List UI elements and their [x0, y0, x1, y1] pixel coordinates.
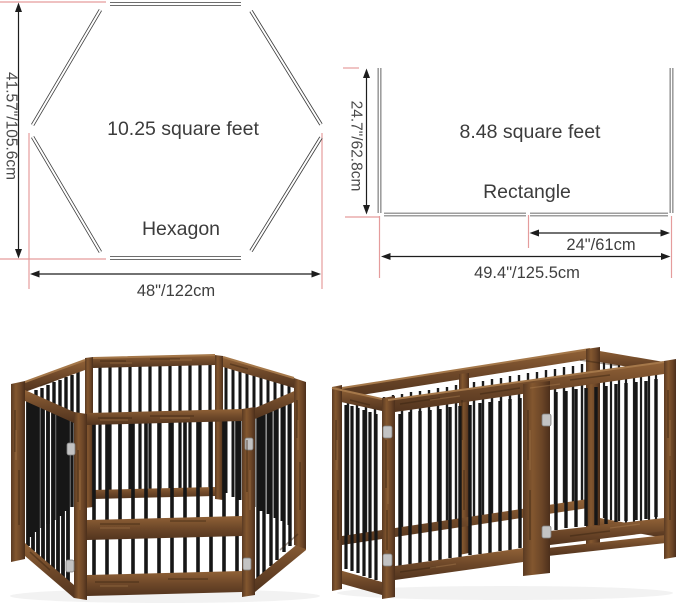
- arrow-left-icon: [530, 230, 540, 237]
- front-left-panel: [11, 381, 74, 598]
- wood-post: [523, 381, 550, 576]
- product-dimension-image: 41.57"/105.6cm 48"/122cm 10.25 square fe…: [0, 0, 679, 606]
- wood-rail: [87, 571, 242, 596]
- wood-post: [215, 355, 223, 500]
- dimension-diagrams: 41.57"/105.6cm 48"/122cm 10.25 square fe…: [0, 0, 679, 310]
- metal-bars: [346, 405, 376, 580]
- rectangle-height-label: 24.7"/62.8cm: [348, 101, 365, 192]
- rectangle-width-label: 49.4"/125.5cm: [474, 264, 580, 282]
- rectangle-shape-label: Rectangle: [483, 181, 571, 203]
- arrow-right-icon: [312, 271, 322, 278]
- hinge-icon: [542, 526, 551, 538]
- hinge-icon: [67, 443, 75, 455]
- arrow-down-icon: [15, 249, 22, 259]
- arrow-up-icon: [15, 3, 22, 13]
- hinge-icon: [542, 414, 551, 426]
- arrow-right-icon: [661, 230, 671, 237]
- rectangle-panel-dimension: 24"/61cm: [530, 230, 671, 255]
- arrow-left-icon: [381, 253, 391, 260]
- rectangle-diagram: 24.7"/62.8cm 24"/61cm 49.4"/125.5cm 8.48…: [343, 68, 672, 282]
- hinge-icon: [383, 554, 392, 566]
- rectangle-width-dimension: 49.4"/125.5cm: [381, 253, 671, 282]
- rectangle-pen-photo: [330, 300, 679, 606]
- arrow-up-icon: [363, 69, 370, 79]
- hinge-icon: [66, 560, 74, 572]
- hinge-icon: [383, 426, 392, 438]
- arrow-down-icon: [363, 205, 370, 215]
- rectangle-panel-label: 24"/61cm: [566, 236, 635, 254]
- hexagon-width-dimension: 48"/122cm: [30, 271, 321, 301]
- metal-bars: [604, 360, 656, 529]
- wood-post: [332, 385, 342, 591]
- hexagon-diagram: 41.57"/105.6cm 48"/122cm 10.25 square fe…: [0, 2, 322, 300]
- arrow-right-icon: [661, 253, 671, 260]
- hexagon-width-label: 48"/122cm: [137, 282, 215, 300]
- left-end-panel: [332, 385, 382, 595]
- front-panels: [332, 359, 676, 599]
- hexagon-shape-label: Hexagon: [142, 218, 220, 240]
- wood-post: [11, 381, 25, 562]
- wood-post: [664, 359, 676, 559]
- hinge-icon: [243, 558, 251, 570]
- arrow-left-icon: [30, 271, 40, 278]
- hexagon-pen-photo: [0, 300, 340, 606]
- rectangle-height-dimension: 24.7"/62.8cm: [348, 69, 371, 215]
- hexagon-area-label: 10.25 square feet: [107, 118, 259, 140]
- rectangle-area-label: 8.48 square feet: [460, 121, 602, 143]
- metal-bars: [100, 361, 210, 495]
- hexagon-height-label: 41.57"/105.6cm: [3, 72, 20, 180]
- hexagon-height-dimension: 41.57"/105.6cm: [3, 3, 23, 259]
